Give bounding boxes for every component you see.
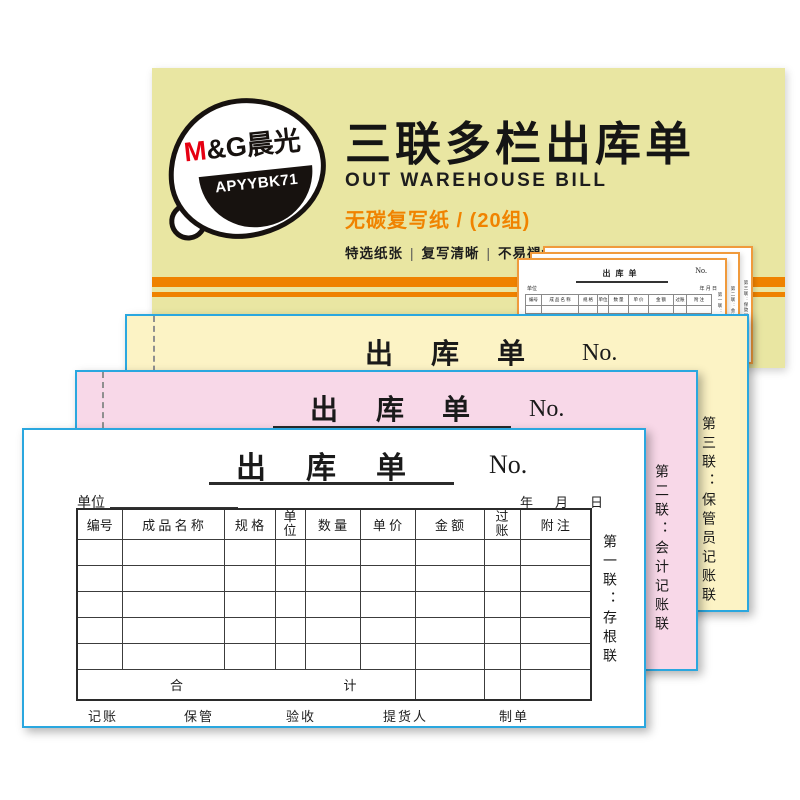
brand-m: M: [182, 135, 208, 167]
col-header: 金 额: [415, 509, 484, 540]
copy-label-third: 第三联：保管员记账联: [697, 416, 717, 606]
signature-label: 记账: [88, 706, 118, 725]
feature-item: 特选纸张: [345, 246, 403, 261]
feature-separator: |: [480, 246, 499, 261]
total-right: 计: [343, 675, 356, 694]
product-image: M&G晨光 APYYBK71 三联多栏出库单 OUT WAREHOUSE BIL…: [0, 0, 800, 800]
col-header: 编号: [77, 509, 122, 540]
cover-title-block: 三联多栏出库单 OUT WAREHOUSE BILL 无碳复写纸 / (20组)…: [345, 120, 775, 262]
table-row: [77, 540, 591, 566]
table-row: [77, 644, 591, 670]
feature-item: 复写清晰: [422, 246, 480, 261]
table-row: [77, 592, 591, 618]
total-left: 合: [170, 675, 183, 694]
table-header-row: 编号 成 品 名 称 规 格 单位 数 量 单 价 金 额 过账 附 注: [77, 509, 591, 540]
mini-form-title: 出库单: [603, 269, 642, 278]
no-label: No.: [582, 340, 617, 367]
mg-logo: M&G晨光 APYYBK71: [161, 90, 333, 246]
col-header: 单位: [275, 509, 305, 540]
signature-row: 记账 保管 验收 提货人 制单: [24, 706, 648, 726]
paper-spec: 无碳复写纸 / (20组): [345, 204, 775, 233]
signature-label: 制单: [499, 706, 529, 725]
mini-date-label: 年 月 日: [699, 285, 717, 292]
form-title: 出库单: [365, 332, 563, 372]
sheet-first-copy: 出库单 No. 单位 年月日 编号 成 品 名 称 规 格 单位 数 量 单 价…: [22, 428, 646, 728]
col-header: 单 价: [360, 509, 415, 540]
table-row: [77, 566, 591, 592]
signature-label: 提货人: [383, 706, 428, 725]
copy-label-first: 第一联：存根联: [598, 534, 618, 667]
copy-label-second: 第二联：会计记账联: [650, 464, 670, 635]
unit-fill-line: [110, 490, 238, 508]
brand-ampg: &G: [205, 131, 248, 165]
product-title: 三联多栏出库单: [345, 120, 775, 168]
table-row: [77, 618, 591, 644]
no-label: No.: [529, 396, 564, 423]
product-title-english: OUT WAREHOUSE BILL: [345, 170, 775, 192]
total-label-cell: 合计: [77, 670, 415, 700]
mini-title-underline: [576, 281, 668, 283]
bill-table: 编号 成 品 名 称 规 格 单位 数 量 单 价 金 额 过账 附 注 合计: [76, 508, 592, 701]
col-header: 规 格: [224, 509, 275, 540]
total-row: 合计: [77, 670, 591, 700]
title-underline: [209, 482, 454, 485]
col-header: 附 注: [520, 509, 591, 540]
brand-chinese: 晨光: [245, 125, 302, 160]
model-code: APYYBK71: [214, 171, 299, 197]
feature-separator: |: [403, 246, 422, 261]
col-header: 数 量: [305, 509, 360, 540]
signature-label: 验收: [286, 706, 316, 725]
col-header: 过账: [484, 509, 520, 540]
mini-no-label: No.: [695, 266, 707, 275]
no-label: No.: [489, 450, 527, 480]
mini-form-header: 出库单 No.: [525, 263, 719, 281]
mini-unit-row: 单位 年 月 日: [525, 285, 719, 292]
form-title: 出库单: [236, 443, 446, 487]
mini-unit-label: 单位: [527, 285, 537, 292]
col-header: 成 品 名 称: [122, 509, 224, 540]
form-title: 出库单: [310, 388, 508, 428]
signature-label: 保管: [184, 706, 214, 725]
